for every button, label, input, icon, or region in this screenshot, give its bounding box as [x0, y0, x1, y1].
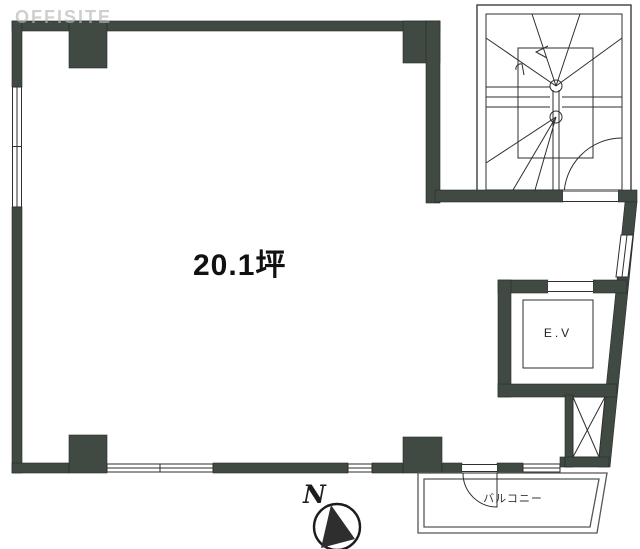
stair-winder-treads: [486, 14, 622, 190]
stair-bottom-wall-corner: [618, 190, 637, 202]
bottom-wall-mid-d: [497, 463, 523, 473]
bottom-window-3: [523, 464, 560, 472]
bottom-wall-mid-c: [442, 463, 462, 473]
stair-hall-door-opening: [563, 190, 618, 202]
pillar-bottom-left: [69, 435, 107, 473]
left-wall-lower: [12, 207, 22, 473]
stair-bottom-wall: [435, 190, 563, 202]
bottom-window-2: [348, 464, 372, 472]
stair-handrail: [553, 90, 559, 190]
ev-door-opening: [548, 280, 593, 293]
bottom-wall-mid-a: [213, 463, 348, 473]
staircase: [477, 5, 631, 197]
compass-north-label: N: [303, 480, 326, 509]
balcony-door-opening: [462, 464, 497, 473]
bottom-wall-mid-b: [372, 463, 403, 473]
left-window: [13, 87, 22, 207]
north-compass: [314, 504, 360, 549]
stair-side-wall: [426, 21, 440, 203]
ps-left-wall: [565, 395, 573, 467]
bottom-window-1: [107, 464, 213, 472]
ev-bottom-wall: [498, 384, 617, 397]
elevator-label: E.V: [523, 326, 593, 340]
balcony-label: バルコニー: [478, 490, 548, 506]
ps-bottom-wall: [565, 457, 609, 467]
bottom-wall-left: [12, 463, 69, 473]
ev-left-wall: [498, 280, 511, 397]
right-slanted-window: [616, 235, 633, 277]
watermark: OFFISITE: [15, 7, 112, 28]
stair-start-marker-icon: [516, 64, 524, 75]
stair-inner-wall: [486, 14, 622, 190]
room-area-label: 20.1坪: [193, 240, 333, 284]
floor-plan: OFFISITE 20.1坪 E.V バルコニー N: [0, 0, 640, 549]
stair-outer-wall: [477, 5, 631, 197]
pillar-bottom-right: [403, 437, 442, 473]
left-wall-upper: [12, 21, 22, 87]
ev-top-wall-right: [593, 280, 627, 293]
stair-well-outline: [518, 48, 593, 158]
stair-treads: [486, 87, 622, 107]
pillar-top-left: [69, 21, 107, 68]
